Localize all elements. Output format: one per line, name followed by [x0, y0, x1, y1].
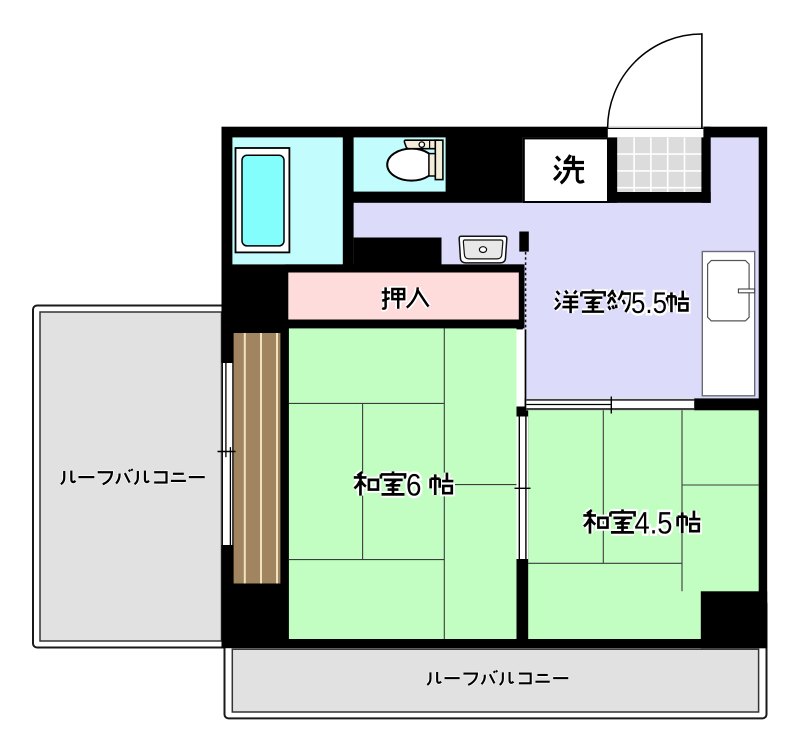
svg-text:4.5: 4.5: [635, 506, 673, 541]
svg-text:5.5: 5.5: [631, 287, 667, 320]
svg-text:6: 6: [406, 468, 422, 503]
